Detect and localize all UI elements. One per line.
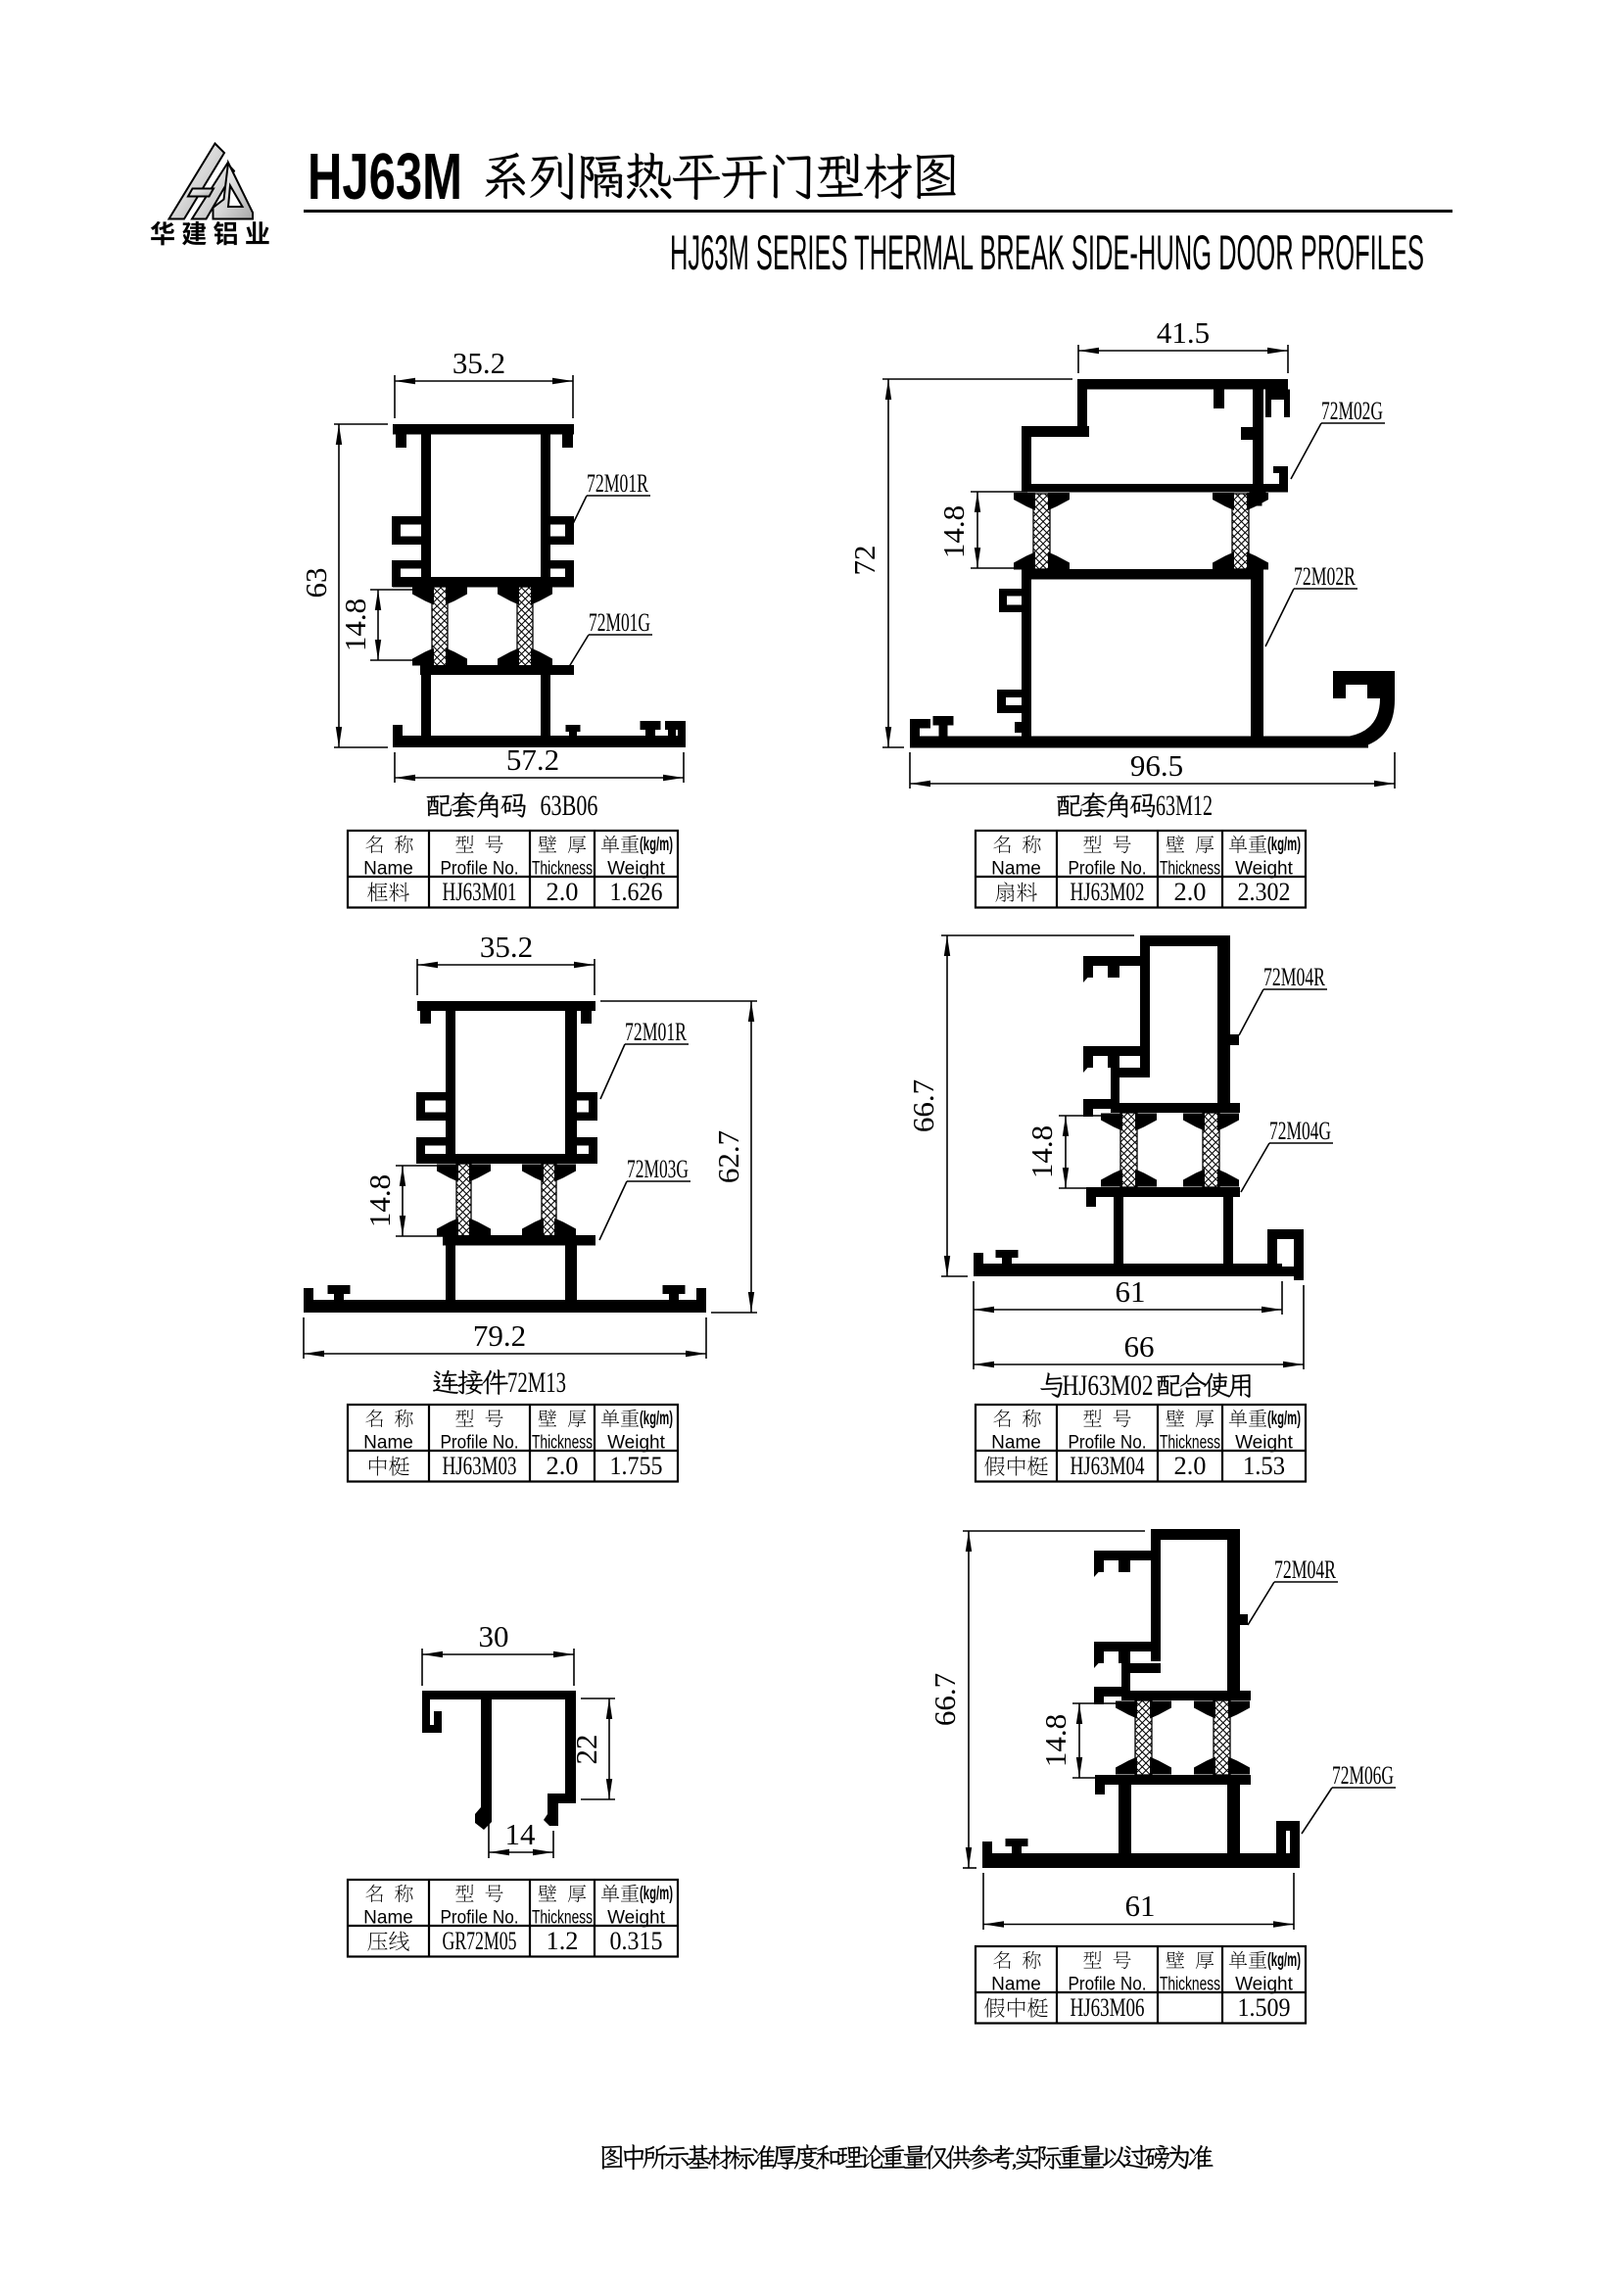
svg-text:2.0: 2.0 (547, 878, 579, 906)
svg-text:57.2: 57.2 (506, 742, 559, 777)
svg-text:72M04G: 72M04G (1269, 1117, 1331, 1145)
svg-text:62.7: 62.7 (711, 1130, 745, 1183)
svg-text:HJ63M01: HJ63M01 (443, 878, 517, 906)
svg-text:61: 61 (1125, 1889, 1156, 1923)
svg-text:0.315: 0.315 (610, 1927, 663, 1955)
svg-text:63M12: 63M12 (1156, 789, 1213, 822)
svg-text:66.7: 66.7 (928, 1673, 962, 1726)
svg-text:79.2: 79.2 (473, 1318, 526, 1353)
svg-text:72M01R: 72M01R (587, 469, 648, 498)
svg-text:14.8: 14.8 (338, 598, 372, 651)
svg-text:HJ63M02: HJ63M02 (1071, 878, 1145, 906)
svg-text:HJ63M04: HJ63M04 (1071, 1452, 1145, 1480)
svg-text:35.2: 35.2 (480, 930, 533, 964)
svg-text:2.0: 2.0 (1174, 878, 1207, 906)
svg-text:72M02R: 72M02R (1294, 562, 1356, 591)
svg-text:66.7: 66.7 (906, 1079, 940, 1132)
svg-text:14.8: 14.8 (936, 505, 971, 558)
svg-text:22: 22 (569, 1735, 603, 1765)
svg-text:14.8: 14.8 (1038, 1714, 1072, 1767)
svg-text:HJ63M02: HJ63M02 (1063, 1369, 1154, 1402)
svg-text:61: 61 (1116, 1274, 1146, 1309)
svg-text:1.2: 1.2 (547, 1927, 579, 1955)
svg-text:72M04R: 72M04R (1274, 1555, 1336, 1584)
svg-text:14: 14 (505, 1817, 537, 1851)
svg-text:96.5: 96.5 (1130, 748, 1183, 783)
svg-text:2.0: 2.0 (547, 1452, 579, 1480)
svg-text:HJ63M: HJ63M (308, 140, 462, 214)
svg-text:GR72M05: GR72M05 (443, 1927, 517, 1955)
svg-text:72M02G: 72M02G (1321, 397, 1383, 425)
svg-text:14.8: 14.8 (362, 1174, 397, 1227)
svg-text:HJ63M SERIES THERMAL BREAK SID: HJ63M SERIES THERMAL BREAK SIDE-HUNG DOO… (670, 225, 1424, 280)
svg-text:2.302: 2.302 (1238, 878, 1291, 906)
svg-text:72M13: 72M13 (507, 1366, 566, 1399)
svg-text:35.2: 35.2 (452, 346, 505, 380)
svg-text:66: 66 (1124, 1329, 1155, 1363)
svg-text:63B06: 63B06 (541, 789, 598, 822)
svg-text:30: 30 (479, 1619, 509, 1653)
svg-text:1.626: 1.626 (610, 878, 663, 906)
svg-text:72M01R: 72M01R (625, 1018, 687, 1046)
svg-text:2.0: 2.0 (1174, 1452, 1207, 1480)
svg-text:72M01G: 72M01G (589, 608, 650, 637)
svg-text:63: 63 (299, 568, 333, 598)
svg-text:72: 72 (847, 546, 881, 576)
svg-text:HJ63M06: HJ63M06 (1071, 1993, 1145, 2022)
svg-text:72M06G: 72M06G (1332, 1761, 1394, 1790)
svg-text:72M04R: 72M04R (1263, 963, 1325, 991)
svg-text:41.5: 41.5 (1157, 315, 1210, 350)
svg-text:1.53: 1.53 (1243, 1452, 1285, 1480)
svg-text:72M03G: 72M03G (627, 1155, 689, 1183)
svg-text:HJ63M03: HJ63M03 (443, 1452, 517, 1480)
svg-text:1.755: 1.755 (610, 1452, 663, 1480)
svg-text:14.8: 14.8 (1024, 1125, 1059, 1178)
svg-text:1.509: 1.509 (1238, 1993, 1291, 2022)
